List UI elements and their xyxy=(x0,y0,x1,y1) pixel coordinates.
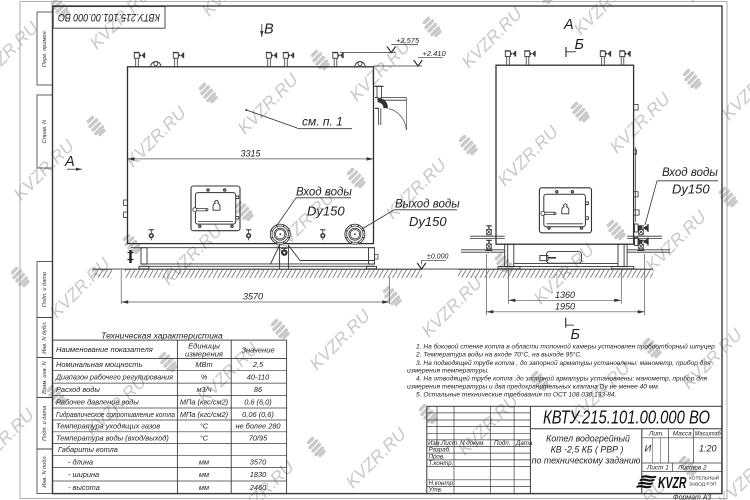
svg-text:измерения температуры и два пр: измерения температуры и два предохраните… xyxy=(407,382,660,390)
svg-text:Расход воды: Расход воды xyxy=(56,385,100,394)
svg-text:Dy150: Dy150 xyxy=(672,182,710,197)
svg-text:мм: мм xyxy=(199,457,209,466)
svg-text:по техническому заданию: по техническому заданию xyxy=(532,456,641,466)
svg-text:3. На подводящей трубе котла: 3. На подводящей трубе котла , до запорн… xyxy=(416,359,711,367)
svg-text:3570: 3570 xyxy=(243,292,263,302)
svg-text:Т.контр.: Т.контр. xyxy=(429,460,454,467)
svg-text:1950: 1950 xyxy=(555,301,575,311)
svg-text:1. На боковой стенке котла в: 1. На боковой стенке котла в области топ… xyxy=(416,343,715,351)
svg-text:Вход воды: Вход воды xyxy=(662,167,718,179)
svg-text:86: 86 xyxy=(254,385,263,394)
svg-text:МПа (кгс/см2): МПа (кгс/см2) xyxy=(180,398,229,407)
svg-text:измерения температуры.: измерения температуры. xyxy=(407,367,489,374)
svg-text:+2.410: +2.410 xyxy=(423,49,447,58)
svg-text:Номинальная мощность: Номинальная мощность xyxy=(56,360,142,369)
svg-text:Б: Б xyxy=(575,37,584,53)
svg-text:2,5: 2,5 xyxy=(252,360,264,369)
svg-text:- длина: - длина xyxy=(68,457,93,466)
svg-text:Диапазон рабочего регулировани: Диапазон рабочего регулирования xyxy=(55,373,173,382)
svg-text:°С: °С xyxy=(200,422,209,431)
svg-text:Вход воды: Вход воды xyxy=(296,187,352,199)
svg-text:2. Температура воды на входе: 2. Температура воды на входе 70°С, на вы… xyxy=(415,350,582,358)
svg-text:1360: 1360 xyxy=(555,290,575,300)
svg-text:Справ. N: Справ. N xyxy=(42,119,48,143)
svg-text:Взам. инв. N: Взам. инв. N xyxy=(42,360,48,394)
svg-text:3570: 3570 xyxy=(250,457,267,466)
svg-text:КВ -2,5 КБ ( РВР ): КВ -2,5 КБ ( РВР ) xyxy=(551,445,624,455)
svg-text:°С: °С xyxy=(200,434,209,443)
svg-text:Утв.: Утв. xyxy=(428,487,443,494)
svg-text:Подп. и дата: Подп. и дата xyxy=(42,272,48,307)
svg-text:- ширина: - ширина xyxy=(68,470,99,479)
svg-text:Подп. и дата: Подп. и дата xyxy=(42,406,48,441)
svg-text:Инв. N дубл.: Инв. N дубл. xyxy=(42,321,48,353)
svg-text:1:20: 1:20 xyxy=(699,444,717,454)
svg-text:%: % xyxy=(201,373,208,382)
svg-text:±0.000: ±0.000 xyxy=(427,254,448,261)
svg-text:не более 280: не более 280 xyxy=(235,422,281,431)
svg-text:КВТУ.215.101.00.000 ВО: КВТУ.215.101.00.000 ВО xyxy=(58,11,160,23)
svg-text:+2.575: +2.575 xyxy=(396,36,420,45)
svg-text:Листов 2: Листов 2 xyxy=(677,465,707,472)
svg-text:2460: 2460 xyxy=(249,483,267,492)
svg-text:В: В xyxy=(264,22,274,38)
svg-text:Температура воды (вход/выход): Температура воды (вход/выход) xyxy=(56,434,169,443)
svg-text:0,6 (6,0): 0,6 (6,0) xyxy=(244,398,272,407)
svg-text:Dy150: Dy150 xyxy=(307,204,345,219)
svg-text:40-110: 40-110 xyxy=(247,373,270,382)
svg-text:Габариты котла: Габариты котла xyxy=(58,445,118,454)
svg-text:А: А xyxy=(563,17,574,33)
svg-text:м3/ч: м3/ч xyxy=(196,385,211,394)
svg-text:Инв. N подл.: Инв. N подл. xyxy=(42,455,48,488)
svg-text:Б: Б xyxy=(571,327,580,343)
svg-text:КВТУ.215.101.00.000 ВО: КВТУ.215.101.00.000 ВО xyxy=(543,407,710,428)
svg-text:70/95: 70/95 xyxy=(249,434,268,443)
svg-text:4. На отводящей трубе котла ,: 4. На отводящей трубе котла ,до запорной… xyxy=(416,375,708,383)
svg-text:Подп.: Подп. xyxy=(494,440,510,447)
svg-text:Лист 1: Лист 1 xyxy=(646,465,669,472)
svg-text:Выход воды: Выход воды xyxy=(395,199,460,211)
svg-text:Значение: Значение xyxy=(241,346,274,355)
svg-text:KVZR: KVZR xyxy=(658,475,687,492)
svg-text:А: А xyxy=(64,154,75,170)
svg-text:5. Остальные технические треб: 5. Остальные технические требования по О… xyxy=(416,391,617,399)
svg-text:Рабочее давление воды: Рабочее давление воды xyxy=(56,398,139,407)
svg-text:1830: 1830 xyxy=(250,470,267,479)
svg-text:Лит.: Лит. xyxy=(648,431,664,438)
svg-text:N докум.: N докум. xyxy=(460,440,485,447)
svg-text:ЗАВОД РЭП: ЗАВОД РЭП xyxy=(689,482,717,488)
svg-text:мм: мм xyxy=(199,470,209,479)
svg-text:Перв. примен.: Перв. примен. xyxy=(42,30,48,67)
svg-text:3315: 3315 xyxy=(240,149,261,159)
svg-text:Котел водогрейный: Котел водогрейный xyxy=(546,434,630,444)
svg-text:Dy150: Dy150 xyxy=(409,214,447,229)
svg-text:см. п. 1: см. п. 1 xyxy=(302,115,343,129)
svg-text:0,06 (0,6): 0,06 (0,6) xyxy=(242,410,274,419)
svg-text:Техническая характеристика: Техническая характеристика xyxy=(101,331,223,341)
svg-text:Наименование показателя: Наименование показателя xyxy=(56,345,153,354)
svg-text:Температура уходящих газов: Температура уходящих газов xyxy=(56,422,160,431)
svg-text:МПа (кгс/см2): МПа (кгс/см2) xyxy=(180,410,229,419)
svg-text:Дата: Дата xyxy=(515,440,533,447)
svg-text:И: И xyxy=(645,444,652,455)
svg-text:Масса: Масса xyxy=(673,431,692,438)
svg-text:МВт: МВт xyxy=(195,360,212,369)
svg-text:Масштаб: Масштаб xyxy=(695,430,721,438)
svg-text:мм: мм xyxy=(199,483,209,492)
svg-text:- высота: - высота xyxy=(68,483,100,492)
svg-text:Гидравлическое сопротивление к: Гидравлическое сопротивление котла xyxy=(56,410,175,419)
svg-text:Формат А3: Формат А3 xyxy=(673,494,711,500)
svg-text:измерения: измерения xyxy=(185,350,223,359)
